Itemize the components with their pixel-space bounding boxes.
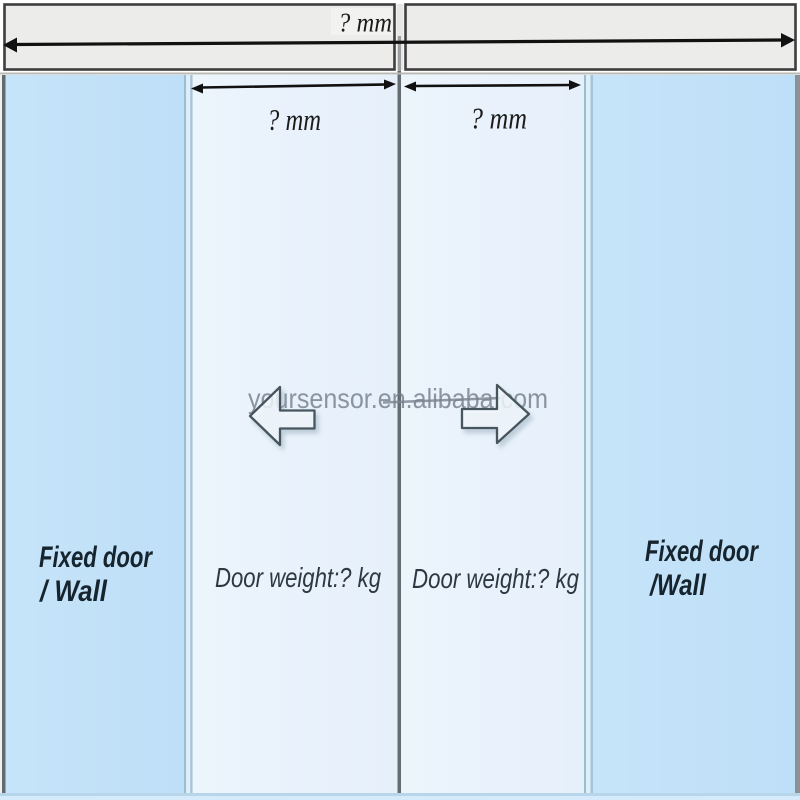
svg-text:/Wall: /Wall: [648, 569, 706, 602]
svg-text:? mm: ? mm: [338, 7, 392, 38]
svg-text:/ Wall: / Wall: [38, 575, 107, 608]
svg-text:? mm: ? mm: [470, 101, 527, 136]
svg-text:Door weight:? kg: Door weight:? kg: [412, 563, 579, 594]
svg-text:? mm: ? mm: [267, 102, 321, 137]
svg-text:Fixed door: Fixed door: [39, 541, 154, 574]
svg-text:Fixed door: Fixed door: [645, 535, 760, 568]
svg-text:Door weight:? kg: Door weight:? kg: [215, 562, 381, 593]
